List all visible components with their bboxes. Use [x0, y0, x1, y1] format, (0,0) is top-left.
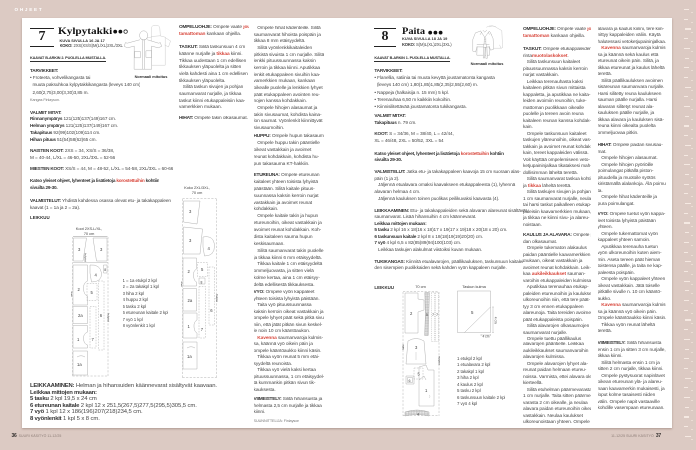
- svg-text:hulpio: hulpio: [215, 294, 218, 302]
- svg-text:7: 7: [201, 327, 204, 332]
- svg-text:7: 7: [432, 313, 434, 317]
- svg-text:3: 3: [415, 345, 418, 350]
- svg-text:4: 4: [208, 246, 211, 251]
- svg-text:2: 2: [188, 269, 191, 274]
- svg-text:4: 4: [94, 273, 97, 278]
- svg-text:3: 3: [78, 247, 81, 252]
- svg-text:2a: 2a: [78, 313, 83, 318]
- svg-text:1: 1: [188, 324, 191, 329]
- svg-text:5: 5: [201, 267, 204, 272]
- svg-text:4 cm: 4 cm: [493, 316, 497, 323]
- svg-text:hulpiot: hulpiot: [106, 313, 109, 322]
- svg-text:3: 3: [100, 247, 103, 252]
- svg-text:2: 2: [410, 311, 413, 316]
- svg-text:5: 5: [425, 313, 427, 317]
- svg-text:1a: 1a: [187, 354, 192, 359]
- svg-text:5: 5: [90, 290, 93, 295]
- svg-text:hulpiot: hulpiot: [83, 253, 87, 262]
- svg-text:taite: taite: [181, 281, 183, 287]
- svg-text:1: 1: [425, 388, 428, 393]
- svg-text:2a: 2a: [188, 298, 193, 303]
- svg-text:hulpiot: hulpiot: [437, 356, 440, 365]
- svg-text:6: 6: [210, 308, 213, 313]
- svg-text:8: 8: [104, 268, 106, 272]
- svg-text:taite: taite: [402, 344, 405, 350]
- svg-text:1: 1: [77, 337, 80, 342]
- svg-text:3: 3: [189, 209, 192, 214]
- svg-text:2: 2: [77, 287, 80, 292]
- svg-text:8: 8: [201, 280, 203, 284]
- svg-text:5: 5: [471, 310, 474, 315]
- svg-text:6: 6: [99, 313, 102, 318]
- svg-text:1a: 1a: [77, 362, 82, 367]
- svg-text:7: 7: [91, 337, 94, 342]
- svg-text:4 cm: 4 cm: [482, 334, 489, 337]
- svg-text:6: 6: [408, 379, 410, 383]
- svg-text:taite: taite: [71, 291, 73, 297]
- svg-text:3: 3: [189, 238, 192, 243]
- svg-text:7: 7: [436, 313, 438, 317]
- svg-text:4: 4: [417, 413, 419, 417]
